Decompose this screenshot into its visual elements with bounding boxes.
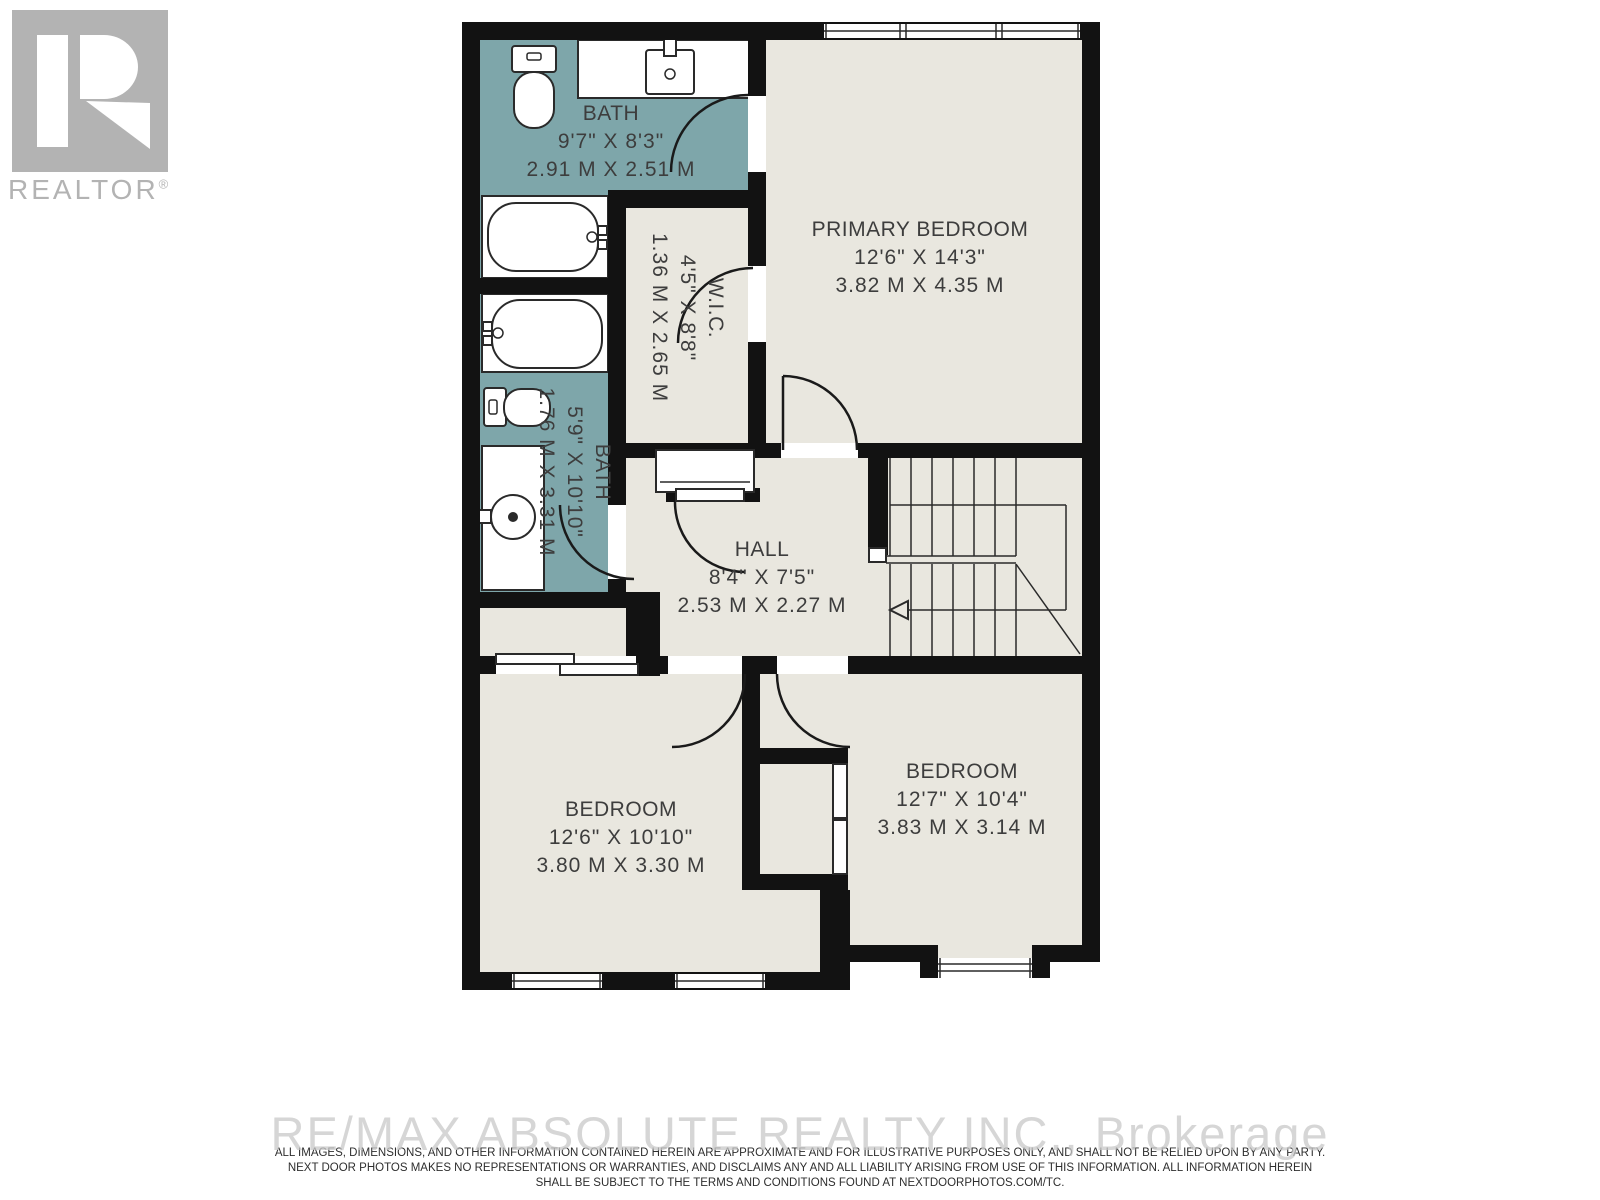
room-name: BATH <box>588 372 616 572</box>
tub-fitting-2 <box>598 240 607 249</box>
window-right-bedroom <box>938 958 1032 978</box>
stair-newel <box>869 548 886 562</box>
room-dims-imperial: 12'6" X 10'10" <box>496 824 746 852</box>
room-name: BEDROOM <box>837 758 1087 786</box>
room-dims-imperial: 12'7" X 10'4" <box>837 786 1087 814</box>
room-label-primary-bedroom: PRIMARY BEDROOM 12'6" X 14'3" 3.82 M X 4… <box>795 216 1045 300</box>
room-dims-metric: 2.53 M X 2.27 M <box>662 592 862 620</box>
room-label-wic: W.I.C. 4'5" X 8'8" 1.36 M X 2.65 M <box>645 233 729 383</box>
room-dims-metric: 3.83 M X 3.14 M <box>837 814 1087 842</box>
room-label-hall: HALL 8'4" X 7'5" 2.53 M X 2.27 M <box>662 536 862 620</box>
sliding-door-panel-1 <box>496 654 574 664</box>
brokerage-watermark: RE/MAX ABSOLUTE REALTY INC., Brokerage <box>0 1106 1600 1161</box>
linen-closet-door <box>676 489 744 501</box>
room-label-bedroom-left: BEDROOM 12'6" X 10'10" 3.80 M X 3.30 M <box>496 796 746 880</box>
tub-fitting-1 <box>598 226 607 235</box>
room-dims-imperial: 8'4" X 7'5" <box>662 564 862 592</box>
tub-fitting-3 <box>483 322 492 331</box>
room-dims-imperial: 12'6" X 14'3" <box>795 244 1045 272</box>
room-dims-imperial: 4'5" X 8'8" <box>673 233 701 383</box>
faucet-main-bath <box>479 510 491 523</box>
room-label-bedroom-right: BEDROOM 12'7" X 10'4" 3.83 M X 3.14 M <box>837 758 1087 842</box>
toilet-tank-top-bath <box>512 46 556 72</box>
room-dims-metric: 3.82 M X 4.35 M <box>795 272 1045 300</box>
disclaimer-line: NEXT DOOR PHOTOS MAKES NO REPRESENTATION… <box>0 1161 1600 1176</box>
room-name: BATH <box>511 100 711 128</box>
room-dims-metric: 1.76 M X 3.31 M <box>532 372 560 572</box>
room-dims-metric: 2.91 M X 2.51 M <box>511 156 711 184</box>
drain-main-bath <box>508 512 518 522</box>
room-name: BEDROOM <box>496 796 746 824</box>
floor-plan-page: REALTOR® <box>0 0 1600 1200</box>
room-dims-metric: 1.36 M X 2.65 M <box>645 233 673 383</box>
room-label-bath-top: BATH 9'7" X 8'3" 2.91 M X 2.51 M <box>511 100 711 184</box>
linen-closet <box>656 450 754 492</box>
room-name: PRIMARY BEDROOM <box>795 216 1045 244</box>
room-dims-imperial: 9'7" X 8'3" <box>511 128 711 156</box>
tub-fitting-4 <box>483 336 492 345</box>
room-name: HALL <box>662 536 862 564</box>
left-bedroom-floor-strip <box>480 945 838 972</box>
toilet-tank-main-bath <box>484 388 506 426</box>
disclaimer-line: SHALL BE SUBJECT TO THE TERMS AND CONDIT… <box>0 1176 1600 1191</box>
sliding-door-panel-2 <box>560 664 638 675</box>
room-label-bath-main: BATH 5'9" X 10'10" 1.76 M X 3.31 M <box>532 372 616 572</box>
room-dims-metric: 3.80 M X 3.30 M <box>496 852 746 880</box>
room-dims-imperial: 5'9" X 10'10" <box>560 372 588 572</box>
room-name: W.I.C. <box>701 233 729 383</box>
